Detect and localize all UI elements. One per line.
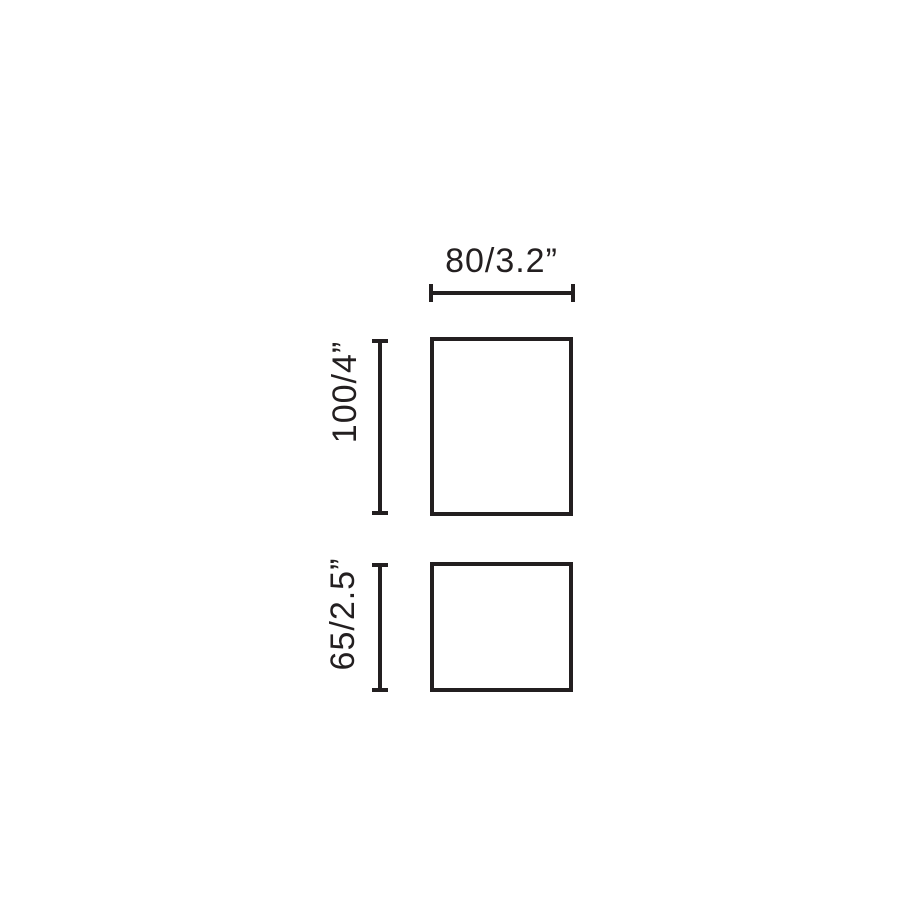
lower-height-label: 65/2.5” (323, 544, 363, 684)
upper-rectangle-outline (430, 337, 573, 516)
lower-height-dimension-line (372, 563, 388, 692)
dimension-tick-right (571, 284, 575, 302)
dimension-line-vertical (378, 563, 382, 692)
dimension-tick-bottom (372, 511, 388, 515)
top-width-dimension-line (429, 284, 575, 302)
dimension-diagram: 80/3.2” 100/4” 65/2.5” (0, 0, 900, 900)
dimension-line-vertical (378, 339, 382, 515)
upper-height-dimension-line (372, 339, 388, 515)
lower-rectangle-outline (430, 562, 573, 692)
dimension-line-horizontal (429, 291, 575, 295)
upper-height-label: 100/4” (325, 322, 365, 462)
top-width-label: 80/3.2” (430, 241, 573, 281)
dimension-tick-bottom (372, 688, 388, 692)
